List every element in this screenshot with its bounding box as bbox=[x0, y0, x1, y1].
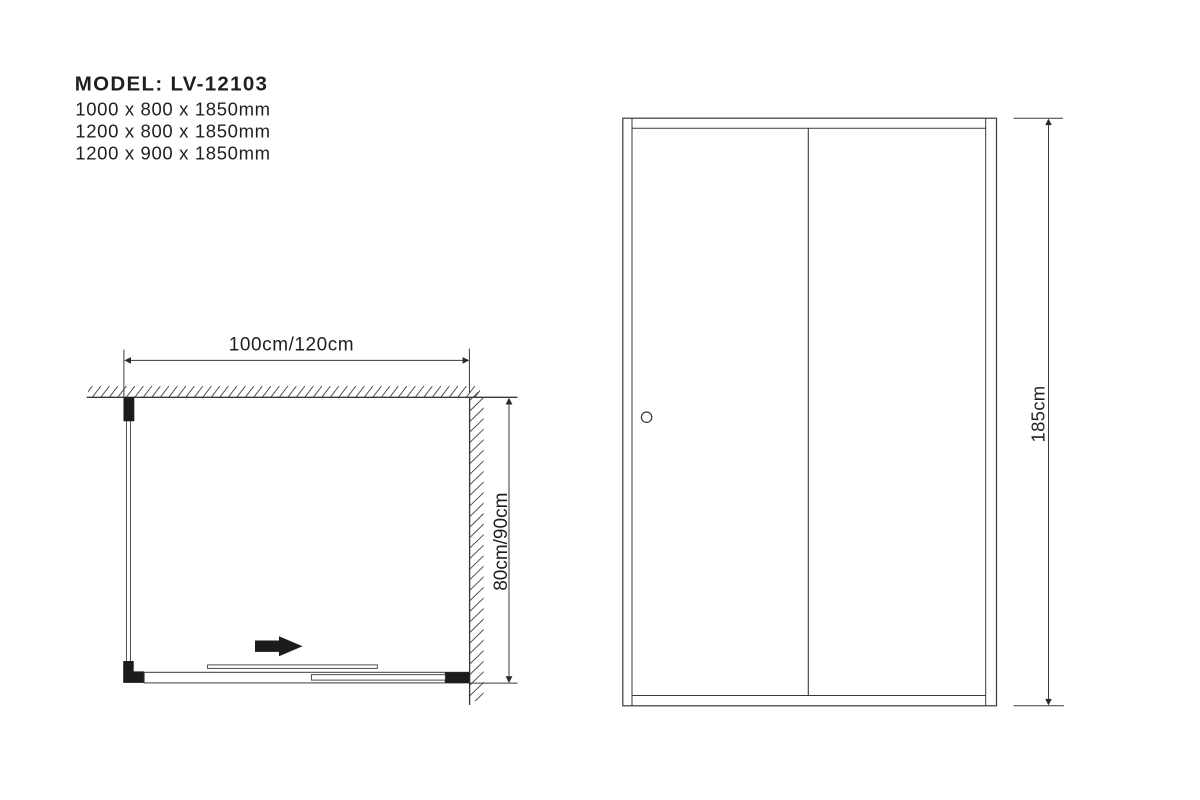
svg-text:MODEL: LV-12103: MODEL: LV-12103 bbox=[75, 72, 268, 95]
svg-text:80cm/90cm: 80cm/90cm bbox=[491, 493, 512, 591]
svg-text:1200 x 900 x 1850mm: 1200 x 900 x 1850mm bbox=[75, 143, 270, 164]
svg-text:100cm/120cm: 100cm/120cm bbox=[229, 335, 354, 356]
svg-text:1000 x 800 x 1850mm: 1000 x 800 x 1850mm bbox=[75, 99, 270, 120]
svg-text:185cm: 185cm bbox=[1027, 385, 1048, 442]
svg-text:1200 x 800 x 1850mm: 1200 x 800 x 1850mm bbox=[75, 121, 270, 142]
